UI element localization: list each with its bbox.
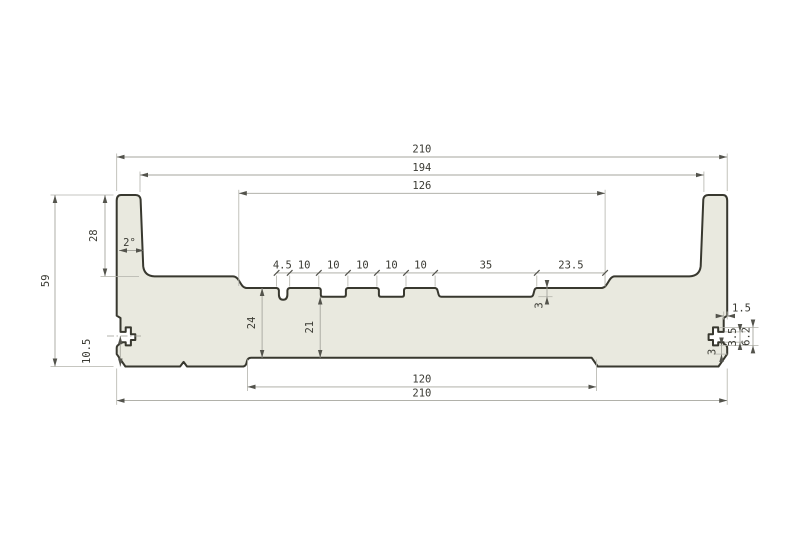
dim-groove-2-width: 10 [327, 259, 340, 271]
dim-recess-to-bottom: 24 [246, 317, 258, 330]
dim-edge-offset: 1.5 [732, 303, 751, 315]
dim-slot-position: 10.5 [81, 339, 93, 364]
dim-gap-1: 10 [298, 259, 311, 271]
dim-groove-3-width: 10 [385, 259, 398, 271]
dim-gap-3: 10 [414, 259, 427, 271]
dim-overall-top: 210 [412, 144, 431, 156]
dim-right-flat: 23.5 [558, 259, 583, 271]
dim-flange-height: 28 [88, 229, 100, 242]
dim-total-height: 59 [40, 274, 52, 287]
profile-cross-section [117, 195, 728, 367]
dim-recess-width: 126 [412, 180, 431, 192]
dim-slot-cavity: 6.2 [741, 327, 753, 346]
dim-bottom-recess: 120 [412, 374, 431, 386]
dim-wide-groove: 35 [480, 259, 493, 271]
dim-bottom-wall: 3 [707, 349, 719, 355]
dim-slot-mouth: 3.5 [727, 328, 739, 347]
dim-groove-1-width: 4.5 [273, 259, 292, 271]
dim-groove-to-bottom: 21 [304, 321, 316, 334]
dim-overall-bottom: 210 [412, 388, 431, 400]
dim-gap-2: 10 [356, 259, 369, 271]
dim-inner-top: 194 [412, 162, 431, 174]
technical-drawing-canvas: 210 194 126 4.5 10 10 10 10 10 35 23.5 1… [0, 0, 804, 557]
dim-draft-angle: 2° [123, 237, 136, 249]
dim-groove-depth: 3 [534, 302, 546, 308]
technical-drawing-page: 210 194 126 4.5 10 10 10 10 10 35 23.5 1… [0, 0, 804, 557]
